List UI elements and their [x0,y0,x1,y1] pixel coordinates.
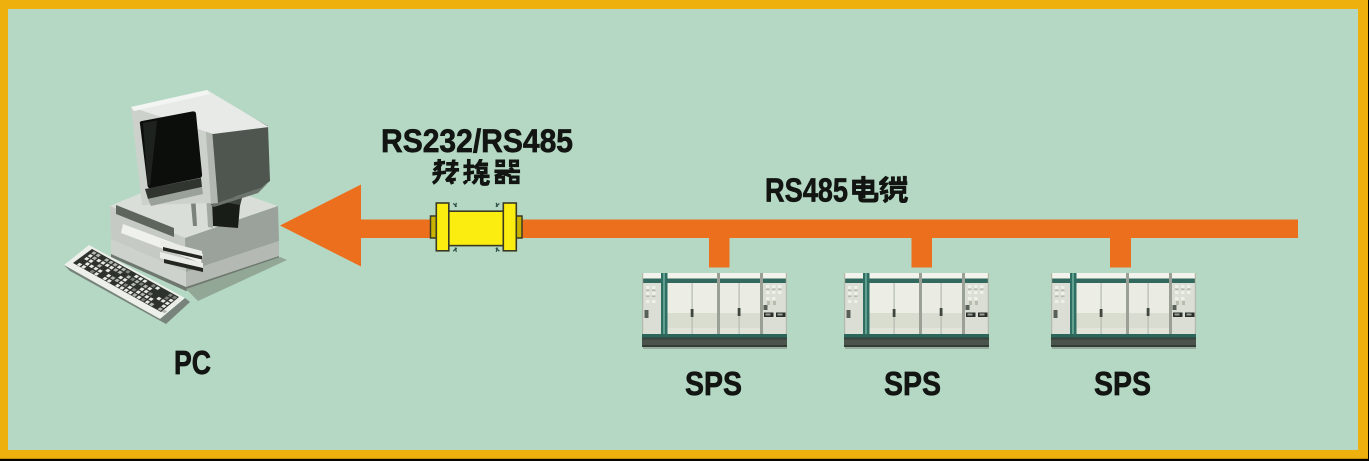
svg-text:PC: PC [174,344,211,381]
svg-text:SPS: SPS [685,365,742,402]
svg-text:RS232/RS485: RS232/RS485 [381,123,573,159]
svg-text:RS485: RS485 [765,172,848,209]
svg-text:SPS: SPS [1094,365,1151,402]
svg-text:SPS: SPS [884,365,941,402]
